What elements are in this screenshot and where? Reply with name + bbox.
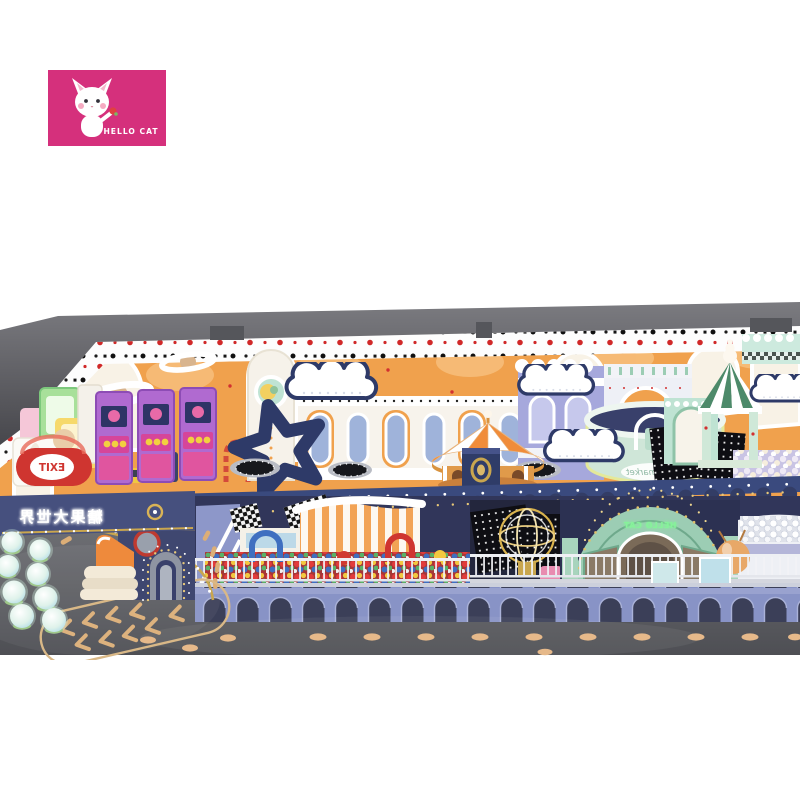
- brand-text: HELLO CAT: [103, 127, 158, 136]
- page-canvas: { "page": { "background": "#ffffff", "wi…: [0, 0, 800, 800]
- exit-sign-text: EXIT: [38, 462, 65, 474]
- playground-scene: EXIT: [0, 300, 800, 660]
- striped-wall: [300, 501, 420, 558]
- marquee-neon-sign: 糖果大世界: [17, 508, 102, 526]
- icecream-stand-top: [742, 334, 800, 364]
- porthole-window: [135, 531, 159, 555]
- glass-kiosk: [652, 562, 678, 584]
- logo-card: HELLO CAT: [48, 70, 166, 146]
- dome-neon-sign: HELLO CAT: [623, 521, 676, 530]
- glass-kiosk: [700, 558, 730, 584]
- facade-marquee: 糖果大世界: [0, 491, 195, 536]
- globe-climb-zone: [470, 500, 566, 592]
- deck-kiosk-box: [462, 448, 500, 486]
